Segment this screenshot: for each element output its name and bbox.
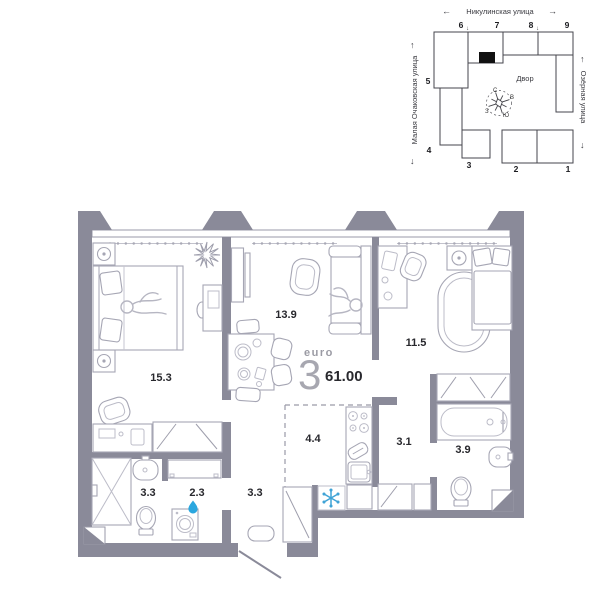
section-number-2: 2: [514, 164, 519, 174]
room-shower: 3.3: [92, 456, 158, 535]
compass-east: В: [510, 95, 514, 101]
section-number-5: 5: [426, 76, 431, 86]
room-laundry: 2.3: [168, 460, 221, 540]
washing-machine: [172, 509, 198, 540]
apartment-location-marker: [479, 52, 495, 63]
dining-chair: [270, 364, 292, 387]
room-area-label: 3.3: [247, 487, 262, 499]
site-plan: Никулинская улица ← → Малая Очаковская у…: [410, 6, 588, 174]
site-buildings: [434, 32, 573, 163]
total-area-label: 61.00: [325, 368, 363, 385]
bay-pillar: [487, 211, 524, 230]
exterior-windows: [78, 211, 524, 244]
base-cabinet: [347, 485, 372, 509]
pillow: [473, 248, 493, 267]
room-area-label: 13.9: [275, 309, 296, 321]
compass-north: С: [493, 88, 498, 94]
shoe-cabinet: [414, 484, 431, 510]
plant: [194, 242, 220, 268]
wardrobe: [153, 422, 222, 452]
courtyard-label: Двор: [516, 74, 533, 83]
water-drop-icon: [188, 501, 197, 514]
street-left-arrow-up-icon: ↑: [410, 40, 415, 50]
section-number-8: 8: [529, 20, 534, 30]
street-right-label: Озёрная улица: [579, 71, 588, 125]
street-right-arrow-up-icon: ↑: [580, 54, 585, 64]
duct-shaft: [84, 527, 105, 544]
street-right-arrow-down-icon: ↓: [580, 140, 585, 150]
entrance-arrow-icon: ↓: [536, 26, 539, 32]
section-number-4: 4: [427, 145, 432, 155]
toilet: [137, 507, 156, 536]
armchair: [289, 257, 322, 297]
toilet: [451, 477, 471, 506]
bay-pillar: [345, 211, 397, 230]
street-left-label: Малая Очаковская улица: [410, 55, 419, 145]
pillow: [492, 248, 510, 266]
dining-chair: [236, 319, 259, 334]
section-number-6: 6: [459, 20, 464, 30]
entrance-door: [239, 551, 281, 578]
shower-cabin: [92, 458, 131, 525]
room-bedroom-2: 11.5: [378, 246, 512, 401]
room-hallway: 3.1: [378, 436, 431, 510]
compass-west: З: [485, 109, 489, 115]
rooms-count-label: 3: [298, 351, 321, 398]
room-bedroom: 15.3: [93, 242, 222, 452]
room-area-label: 2.3: [189, 487, 204, 499]
room-area-label: 3.3: [140, 487, 155, 499]
room-area-label: 3.1: [396, 436, 411, 448]
compass-south: Ю: [503, 113, 509, 119]
washbasin: [133, 456, 158, 480]
section-number-9: 9: [565, 20, 570, 30]
room-entrance-hall: 3.3: [247, 487, 312, 542]
pillow: [100, 271, 123, 296]
bay-pillar: [78, 211, 112, 230]
desk-chair: [96, 395, 132, 427]
room-area-label: 4.4: [305, 433, 321, 445]
bay-pillar: [202, 211, 253, 230]
tv: [245, 253, 250, 297]
section-number-7: 7: [495, 20, 500, 30]
floorplan-page: Никулинская улица ← → Малая Очаковская у…: [0, 0, 600, 600]
room-area-label: 15.3: [150, 372, 171, 384]
floorplan-svg: Никулинская улица ← → Малая Очаковская у…: [0, 0, 600, 600]
desk: [378, 246, 407, 308]
shelf: [168, 460, 221, 478]
floor-plan: 15.3: [78, 211, 524, 578]
bathtub: [437, 404, 511, 440]
sofa: [329, 246, 371, 334]
street-top-arrow-left-icon: ←: [442, 6, 451, 16]
apartment-title: euro 3 61.00: [298, 347, 363, 398]
dining-table: [228, 334, 274, 390]
room-area-label: 11.5: [406, 337, 427, 349]
pillow: [100, 318, 123, 343]
washbasin: [489, 447, 513, 467]
section-number-1: 1: [566, 164, 571, 174]
dining-chair: [236, 387, 261, 402]
pouf: [248, 526, 274, 541]
section-number-3: 3: [467, 160, 472, 170]
tv-console: [232, 248, 244, 302]
kitchen-sink: [348, 462, 371, 482]
street-top-label: Никулинская улица: [466, 7, 534, 16]
room-area-label: 3.9: [455, 444, 470, 456]
blanket: [474, 271, 511, 324]
entrance-arrow-icon: ↓: [466, 26, 469, 32]
room-living: 13.9 euro 3 61.00: [228, 246, 371, 402]
duct-shaft: [492, 490, 513, 511]
compass-icon: С В З Ю: [485, 88, 514, 119]
street-left-arrow-down-icon: ↓: [410, 156, 415, 166]
street-top-arrow-right-icon: →: [548, 6, 557, 16]
